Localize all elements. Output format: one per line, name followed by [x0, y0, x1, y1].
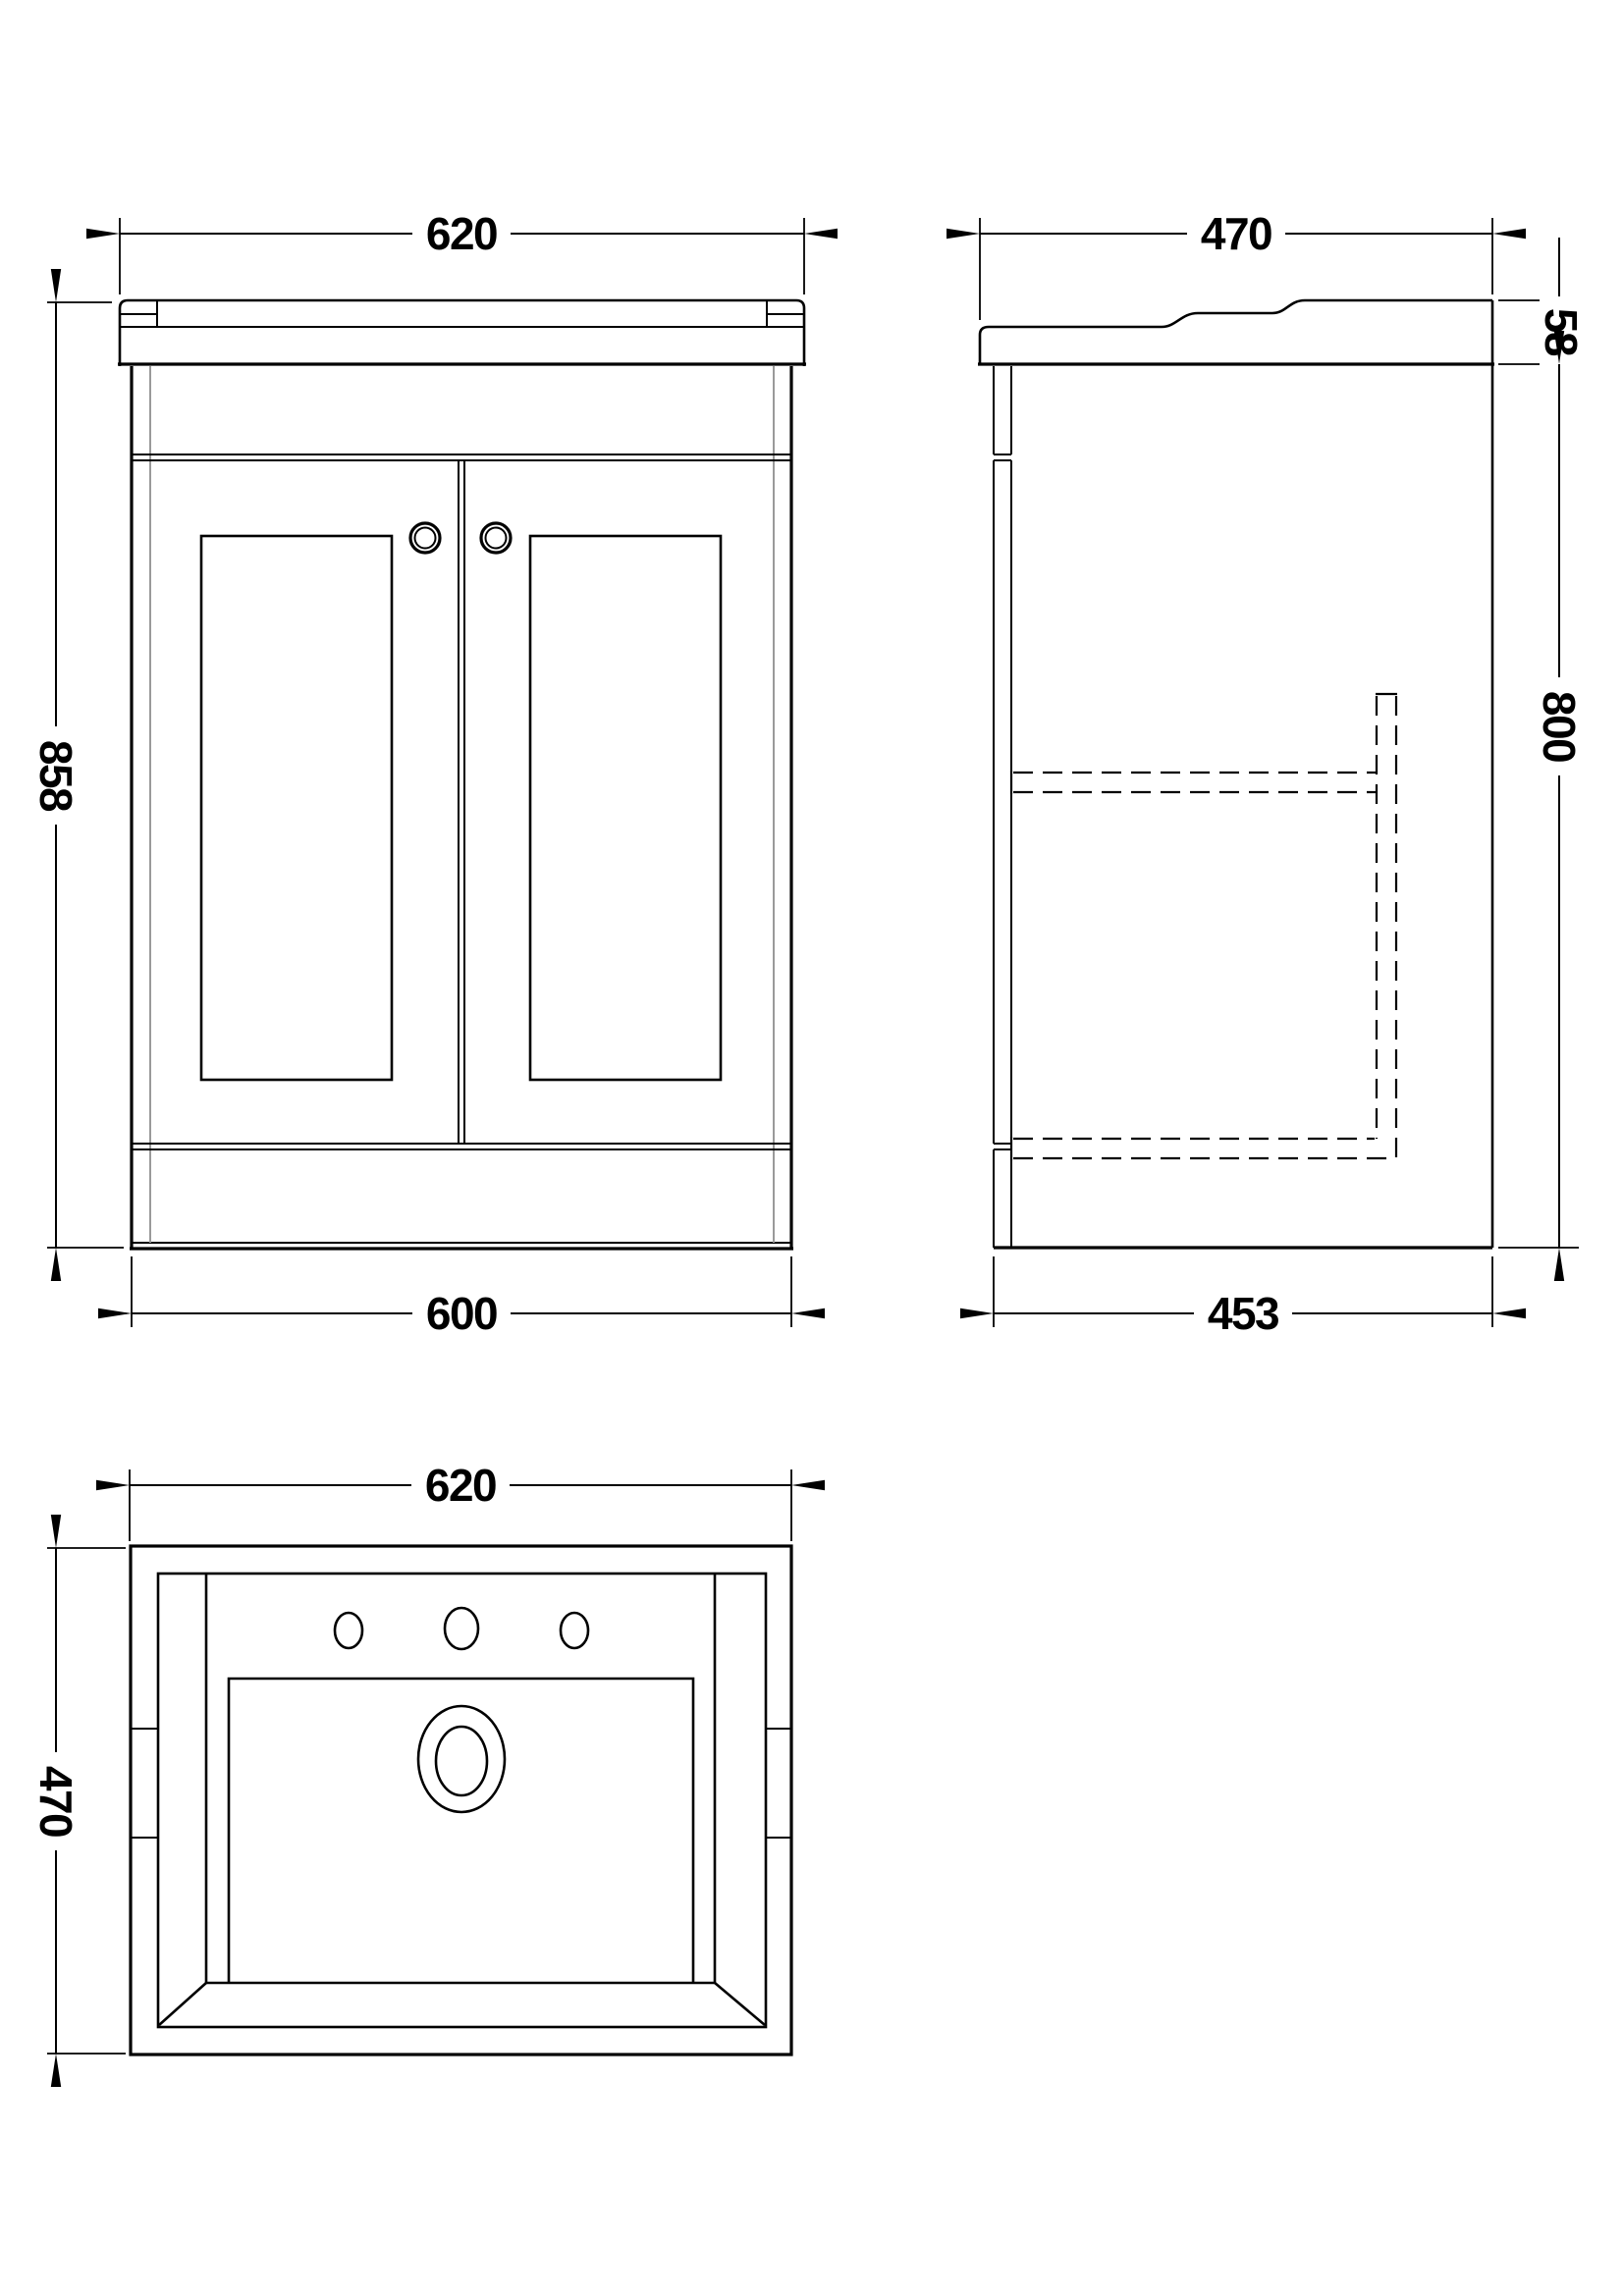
- dim-side-top-depth: 470: [980, 208, 1492, 320]
- bowl-bevel-left: [159, 1983, 206, 2025]
- dimension-label-group: 800: [1534, 677, 1585, 775]
- drain-inner: [436, 1727, 487, 1795]
- front-cabinet: [130, 366, 793, 1249]
- door-knob-right-inner: [486, 528, 507, 549]
- bowl-bevel-right: [715, 1983, 765, 2025]
- dimension-label: 453: [1208, 1288, 1278, 1339]
- dimension-label: 858: [30, 740, 81, 812]
- basin-profile-outline: [980, 300, 1492, 364]
- dim-front-bottom-width: 600: [132, 1256, 791, 1339]
- side-cabinet: [994, 300, 1492, 1248]
- basin-rim-outline: [158, 1574, 766, 2027]
- dimension-label-group: 470: [30, 1752, 81, 1850]
- front-basin-top: [118, 300, 806, 366]
- front-doors: [201, 460, 721, 1144]
- dim-side-bottom-depth: 453: [994, 1256, 1492, 1339]
- side-basin-profile: [978, 300, 1494, 364]
- top-view: 620 470: [30, 1460, 791, 2055]
- tap-hole-left: [335, 1613, 362, 1648]
- basin-outline: [120, 300, 804, 366]
- dim-top-width: 620: [130, 1460, 791, 1541]
- dimension-label-group: 858: [30, 726, 81, 825]
- dim-front-top-width: 620: [120, 208, 804, 294]
- dim-side-basin-height: 58: [1498, 238, 1587, 367]
- dimension-label: 620: [426, 208, 497, 259]
- bowl-opening: [229, 1679, 693, 1983]
- vanity-technical-drawing: 620 858 600: [0, 0, 1623, 2296]
- dimension-label-group: 58: [1536, 296, 1587, 367]
- dimension-label: 470: [30, 1766, 81, 1837]
- dim-front-height: 858: [30, 302, 124, 1248]
- door-panel-right: [530, 536, 721, 1080]
- plan-basin: [131, 1546, 791, 2055]
- tap-hole-center: [445, 1608, 478, 1649]
- dimension-label: 58: [1536, 308, 1587, 356]
- door-knob-left-inner: [415, 528, 436, 549]
- plan-fittings: [335, 1608, 588, 1812]
- dimension-label: 470: [1201, 208, 1271, 259]
- dimension-label: 620: [425, 1460, 496, 1511]
- drawing-sheet: 620 858 600: [0, 0, 1623, 2296]
- tap-hole-right: [561, 1613, 588, 1648]
- door-panel-left: [201, 536, 392, 1080]
- dimension-label: 800: [1534, 691, 1585, 762]
- side-view: 470 58 800 453: [978, 208, 1587, 1339]
- dim-side-body-height: 800: [1498, 364, 1585, 1248]
- dimension-label: 600: [426, 1288, 497, 1339]
- dim-top-depth: 470: [30, 1548, 126, 2054]
- front-view: 620 858 600: [30, 208, 806, 1339]
- side-hidden-shelves: [1011, 694, 1397, 1160]
